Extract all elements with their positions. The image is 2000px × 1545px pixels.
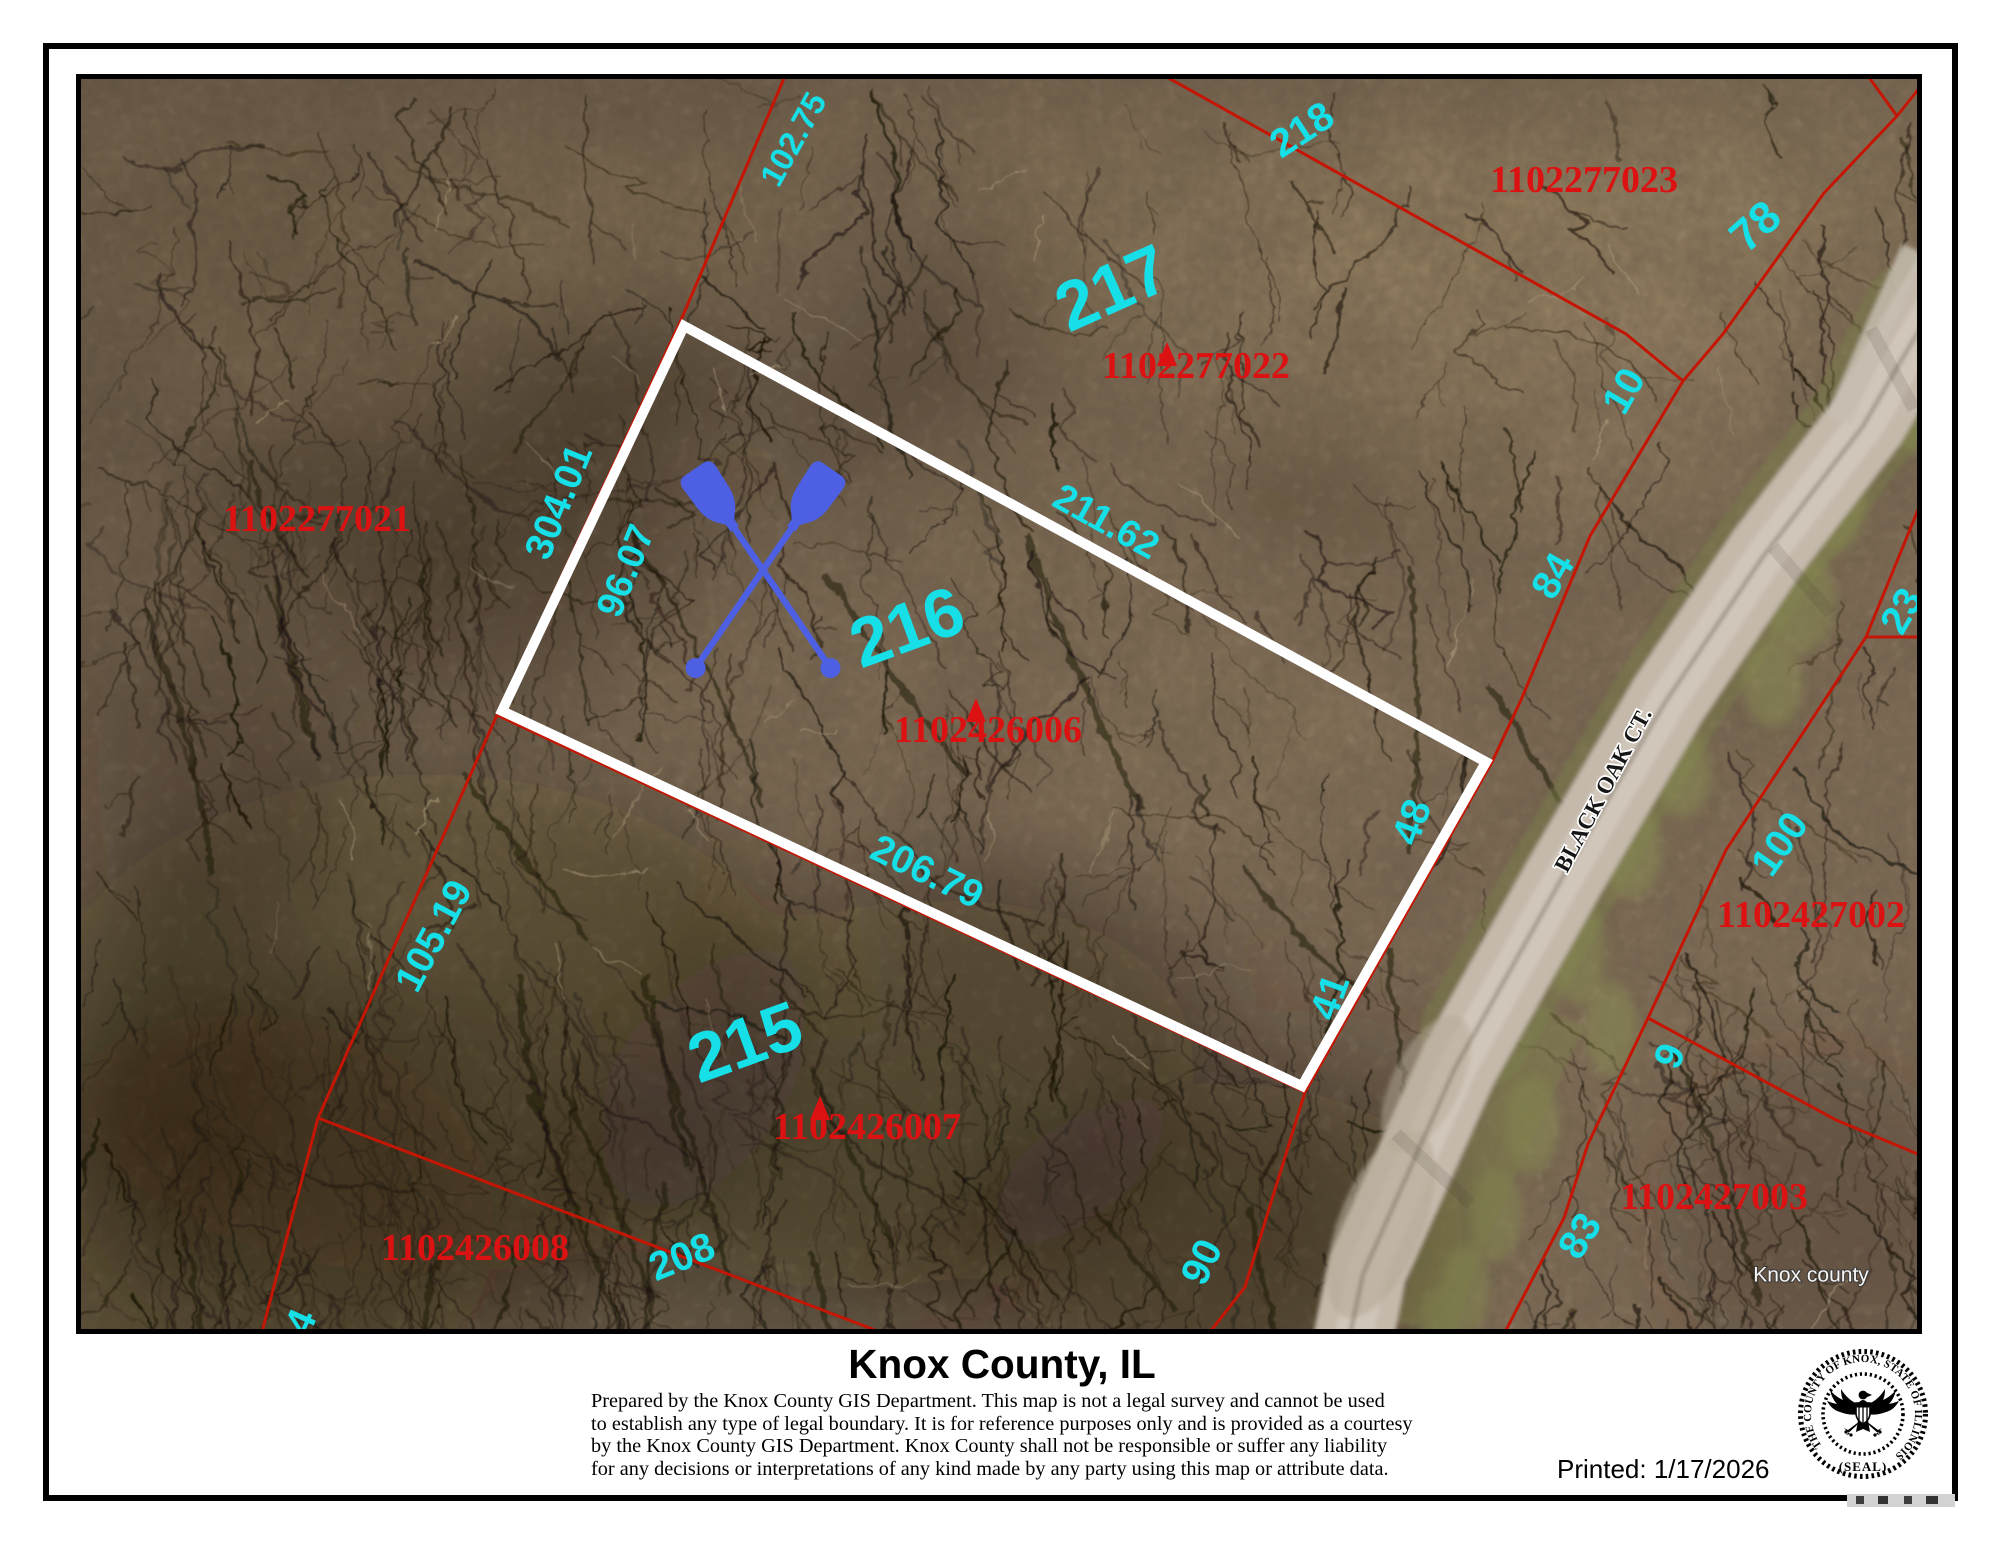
svg-text:1102427002: 1102427002 (1717, 894, 1905, 936)
svg-text:1102277023: 1102277023 (1490, 159, 1678, 201)
svg-text:1102277021: 1102277021 (223, 498, 411, 540)
svg-text:1102426007: 1102426007 (773, 1106, 961, 1148)
svg-text:1102427003: 1102427003 (1620, 1176, 1808, 1218)
svg-text:1102277022: 1102277022 (1102, 345, 1290, 387)
svg-text:1102426006: 1102426006 (894, 709, 1082, 751)
svg-text:Knox county: Knox county (1753, 1264, 1869, 1287)
svg-text:(SEAL): (SEAL) (1839, 1459, 1888, 1474)
svg-text:1102426008: 1102426008 (381, 1227, 569, 1269)
